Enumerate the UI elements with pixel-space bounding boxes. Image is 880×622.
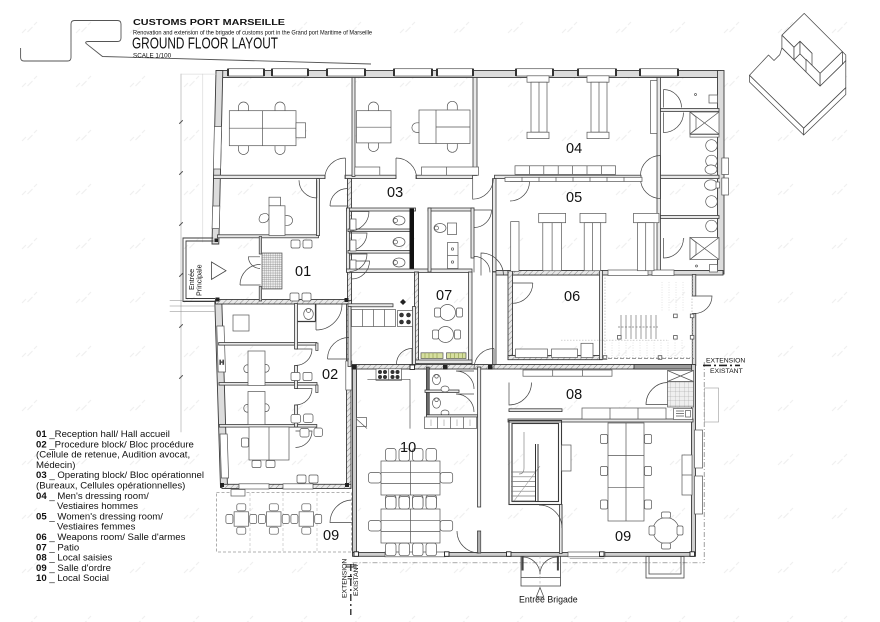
svg-text:03: 03	[387, 185, 403, 201]
svg-text:02: 02	[322, 367, 338, 383]
svg-text:GROUND FLOOR LAYOUT: GROUND FLOOR LAYOUT	[132, 36, 278, 53]
svg-text:09: 09	[615, 529, 631, 545]
svg-text:Principale: Principale	[195, 264, 204, 296]
svg-text:10 _ Local Social: 10 _ Local Social	[36, 573, 109, 584]
svg-text:09: 09	[323, 528, 339, 544]
svg-text:10: 10	[400, 440, 416, 456]
svg-text:06: 06	[564, 289, 580, 305]
svg-text:01: 01	[295, 264, 311, 280]
svg-text:SCALE 1/100: SCALE 1/100	[133, 53, 172, 60]
svg-text:EXTENSION: EXTENSION	[706, 358, 745, 365]
svg-text:Entrée Brigade: Entrée Brigade	[519, 595, 578, 605]
svg-text:07: 07	[436, 288, 452, 304]
svg-text:CUSTOMS PORT MARSEILLE: CUSTOMS PORT MARSEILLE	[133, 17, 285, 27]
svg-text:05: 05	[566, 190, 582, 206]
svg-text:EXTENSION: EXTENSION	[342, 559, 349, 598]
svg-text:04: 04	[566, 141, 582, 157]
svg-text:08: 08	[566, 387, 582, 403]
svg-text:H: H	[219, 360, 224, 367]
svg-text:EXISTANT: EXISTANT	[710, 368, 743, 375]
svg-text:EXISTANT: EXISTANT	[353, 563, 360, 596]
